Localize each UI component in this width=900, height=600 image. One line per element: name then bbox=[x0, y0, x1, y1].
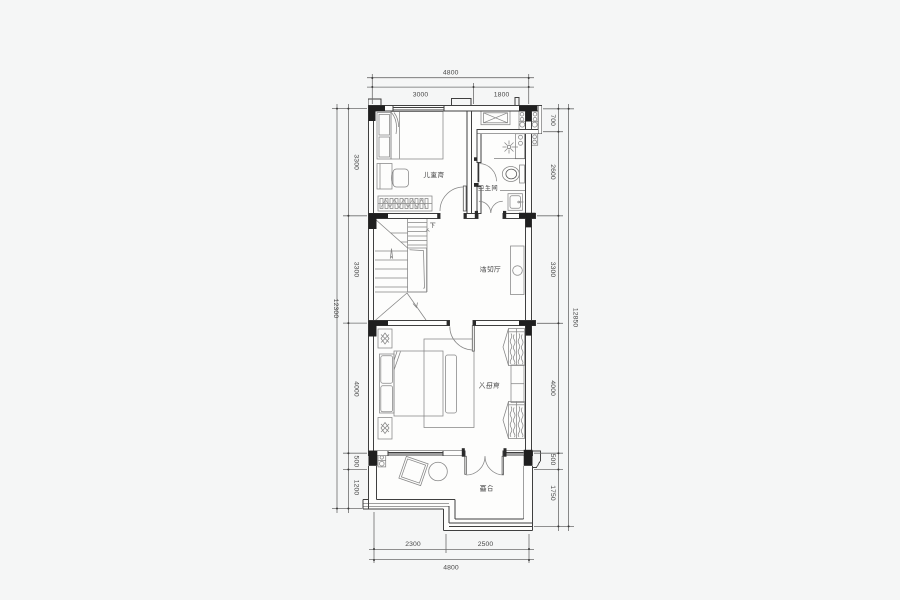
svg-text:12850: 12850 bbox=[572, 308, 579, 328]
svg-text:4000: 4000 bbox=[549, 380, 556, 396]
svg-text:12300: 12300 bbox=[332, 299, 339, 319]
svg-text:3000: 3000 bbox=[413, 92, 429, 99]
svg-text:4000: 4000 bbox=[353, 381, 360, 397]
svg-text:500: 500 bbox=[549, 454, 556, 466]
svg-text:2500: 2500 bbox=[478, 541, 494, 548]
svg-text:3300: 3300 bbox=[353, 262, 360, 278]
svg-text:2300: 2300 bbox=[405, 541, 421, 548]
svg-text:2600: 2600 bbox=[549, 164, 556, 180]
svg-text:4800: 4800 bbox=[443, 70, 459, 77]
svg-text:1800: 1800 bbox=[494, 92, 510, 99]
svg-text:4800: 4800 bbox=[443, 565, 459, 572]
svg-text:1200: 1200 bbox=[353, 480, 360, 496]
svg-text:1750: 1750 bbox=[549, 485, 556, 501]
svg-text:500: 500 bbox=[353, 456, 360, 468]
svg-text:3300: 3300 bbox=[353, 154, 360, 170]
svg-text:3300: 3300 bbox=[549, 262, 556, 278]
svg-text:700: 700 bbox=[549, 114, 556, 126]
